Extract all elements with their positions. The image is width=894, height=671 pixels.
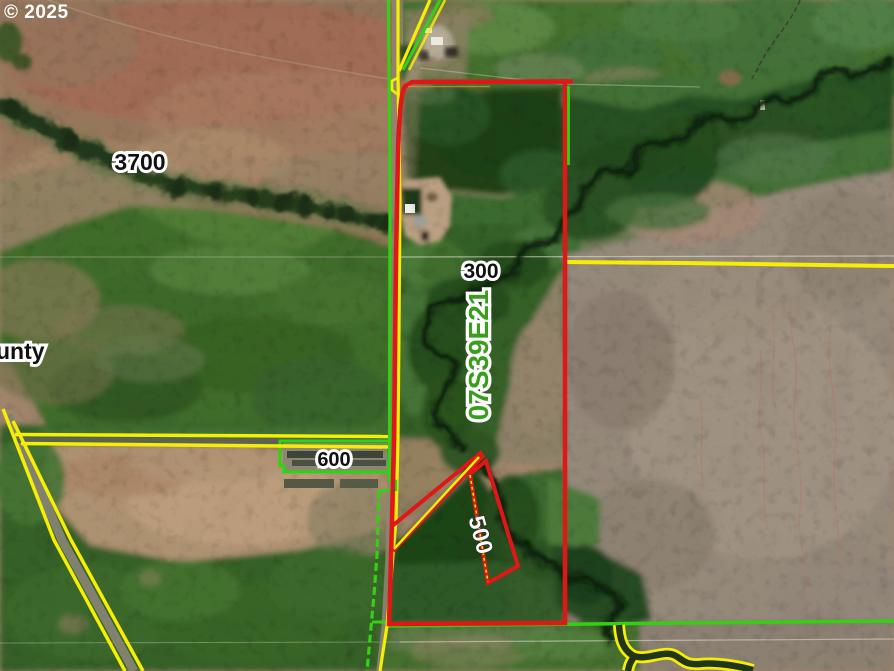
svg-text:unty: unty [0, 338, 45, 364]
svg-text:3700: 3700 [114, 149, 165, 175]
svg-text:600: 600 [317, 449, 350, 471]
svg-text:© 2025: © 2025 [4, 2, 69, 23]
svg-text:07S39E21: 07S39E21 [463, 290, 494, 421]
svg-text:300: 300 [463, 260, 498, 283]
